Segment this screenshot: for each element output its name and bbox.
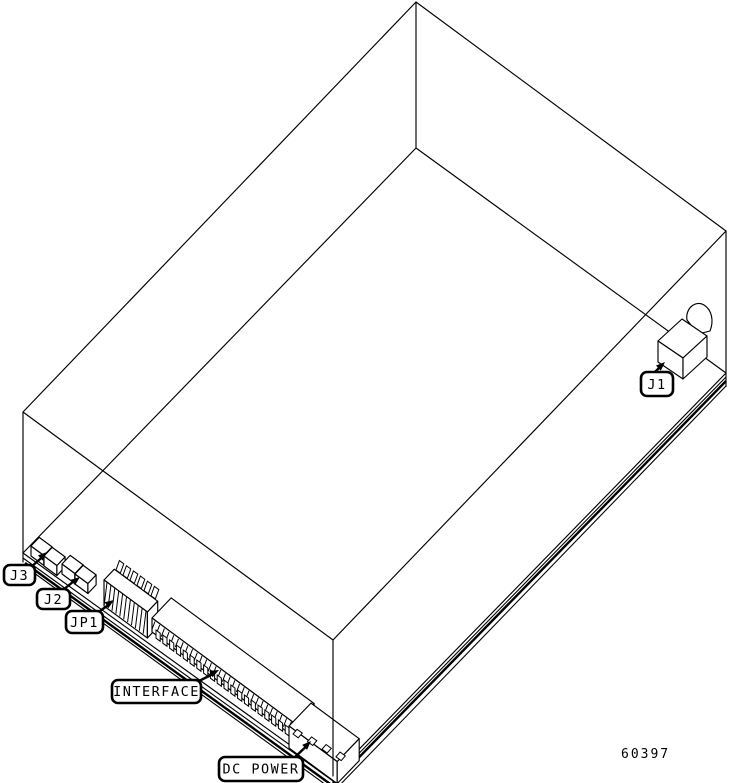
enclosure-wireframe-diagram: J3 J2 JP1 INTERFACE DC POWER J1 60397 [0,0,729,783]
callout-j2: J2 [37,577,80,609]
label-j1: J1 [647,377,666,393]
callout-jp1: JP1 [66,600,114,633]
label-dc-power: DC POWER [222,762,299,778]
label-interface: INTERFACE [113,684,200,700]
enclosure-wireframe [23,2,726,776]
callout-j3: J3 [4,552,47,585]
technical-diagram-page: J3 J2 JP1 INTERFACE DC POWER J1 60397 [0,0,729,783]
callout-interface: INTERFACE [112,670,219,703]
connector-j1 [658,303,712,379]
label-j3: J3 [10,568,29,584]
label-jp1: JP1 [70,615,99,631]
pcb-rails [23,373,726,783]
label-j2: J2 [44,592,63,608]
figure-number: 60397 [621,747,670,762]
